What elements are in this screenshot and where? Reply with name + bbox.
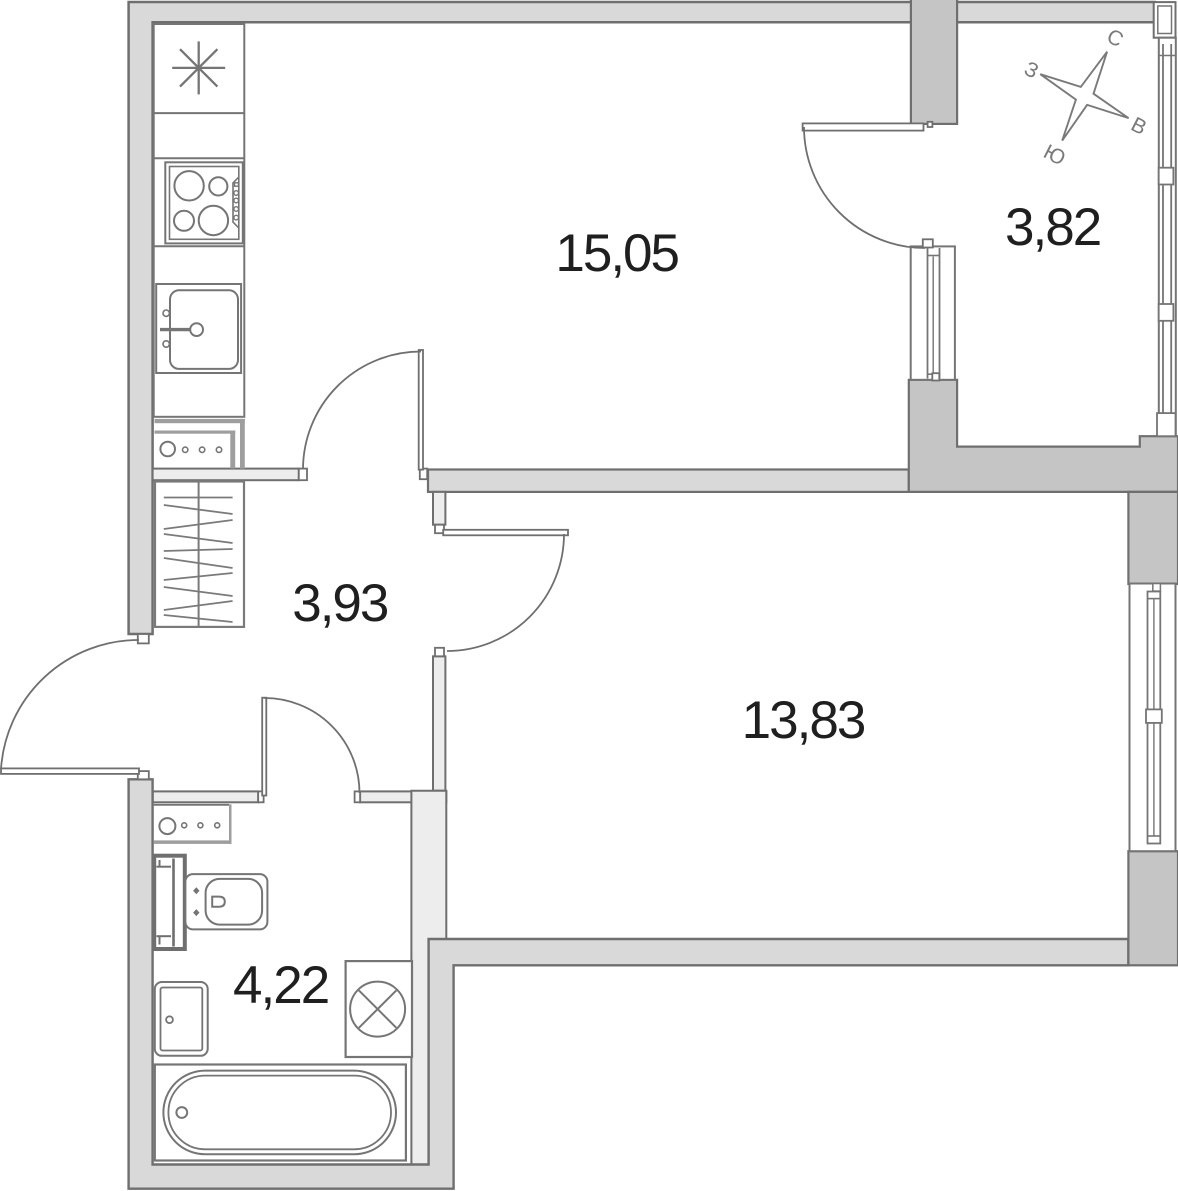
svg-text:13,83: 13,83: [742, 691, 865, 750]
svg-text:4,22: 4,22: [233, 956, 328, 1015]
svg-text:15,05: 15,05: [555, 224, 678, 283]
svg-text:3,82: 3,82: [1005, 198, 1100, 257]
svg-text:3,93: 3,93: [292, 574, 388, 633]
